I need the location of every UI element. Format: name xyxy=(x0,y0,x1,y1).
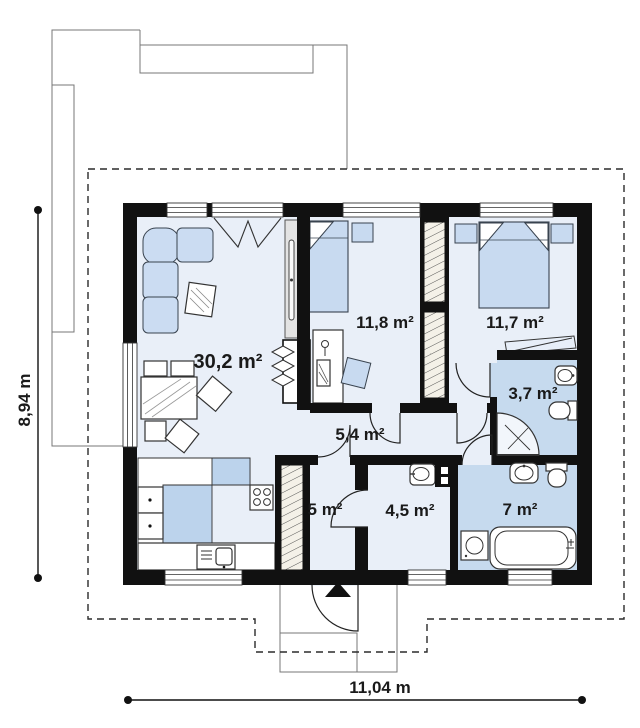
window xyxy=(212,203,283,217)
room-label-bathroom: 7 m² xyxy=(503,500,538,519)
room-label-bedroom1: 11,8 m² xyxy=(356,313,414,332)
wardrobe-icon xyxy=(420,217,449,413)
floor-plan-page: 30,2 m² 11,8 m² 11,7 m² 5,4 m² 3,7 m² 5 … xyxy=(0,0,640,728)
window xyxy=(343,203,420,217)
closet-icon xyxy=(281,465,303,570)
bed-double-icon xyxy=(479,222,549,308)
dimension-height: 8,94 m xyxy=(15,206,42,582)
room-label-vestibule: 5 m² xyxy=(308,500,343,519)
utility-sink-icon xyxy=(410,464,435,485)
nightstand-icon xyxy=(455,224,477,243)
dimension-width: 11,04 m xyxy=(124,678,586,704)
washing-machine-icon xyxy=(461,531,488,560)
toilet-icon xyxy=(549,401,577,420)
dimension-height-label: 8,94 m xyxy=(15,374,34,427)
boiler-icon xyxy=(435,463,452,487)
toilet-icon xyxy=(546,463,567,487)
bed-single-icon xyxy=(309,221,348,312)
window xyxy=(480,203,553,217)
window xyxy=(508,570,552,585)
bathtub-icon xyxy=(490,527,576,569)
tv-cabinet-icon xyxy=(285,220,298,338)
room-label-bedroom2: 11,7 m² xyxy=(486,313,544,332)
room-label-utility: 4,5 m² xyxy=(385,501,434,520)
desk-icon xyxy=(313,330,343,403)
washbasin-icon xyxy=(510,463,538,483)
window xyxy=(123,343,137,447)
coffee-table-icon xyxy=(185,282,216,316)
nightstand-icon xyxy=(352,223,373,242)
washbasin-icon xyxy=(555,366,577,385)
floor-plan-drawing: 30,2 m² 11,8 m² 11,7 m² 5,4 m² 3,7 m² 5 … xyxy=(0,0,640,728)
room-label-living: 30,2 m² xyxy=(194,351,263,373)
room-label-bathroom-small: 3,7 m² xyxy=(508,384,557,403)
window xyxy=(408,570,446,585)
kitchen-sink-icon xyxy=(197,545,235,569)
window xyxy=(167,203,207,217)
dimension-width-label: 11,04 m xyxy=(349,678,410,697)
window xyxy=(165,570,242,585)
nightstand-icon xyxy=(551,224,573,243)
room-label-hallway: 5,4 m² xyxy=(335,425,384,444)
stove-icon xyxy=(250,485,273,510)
